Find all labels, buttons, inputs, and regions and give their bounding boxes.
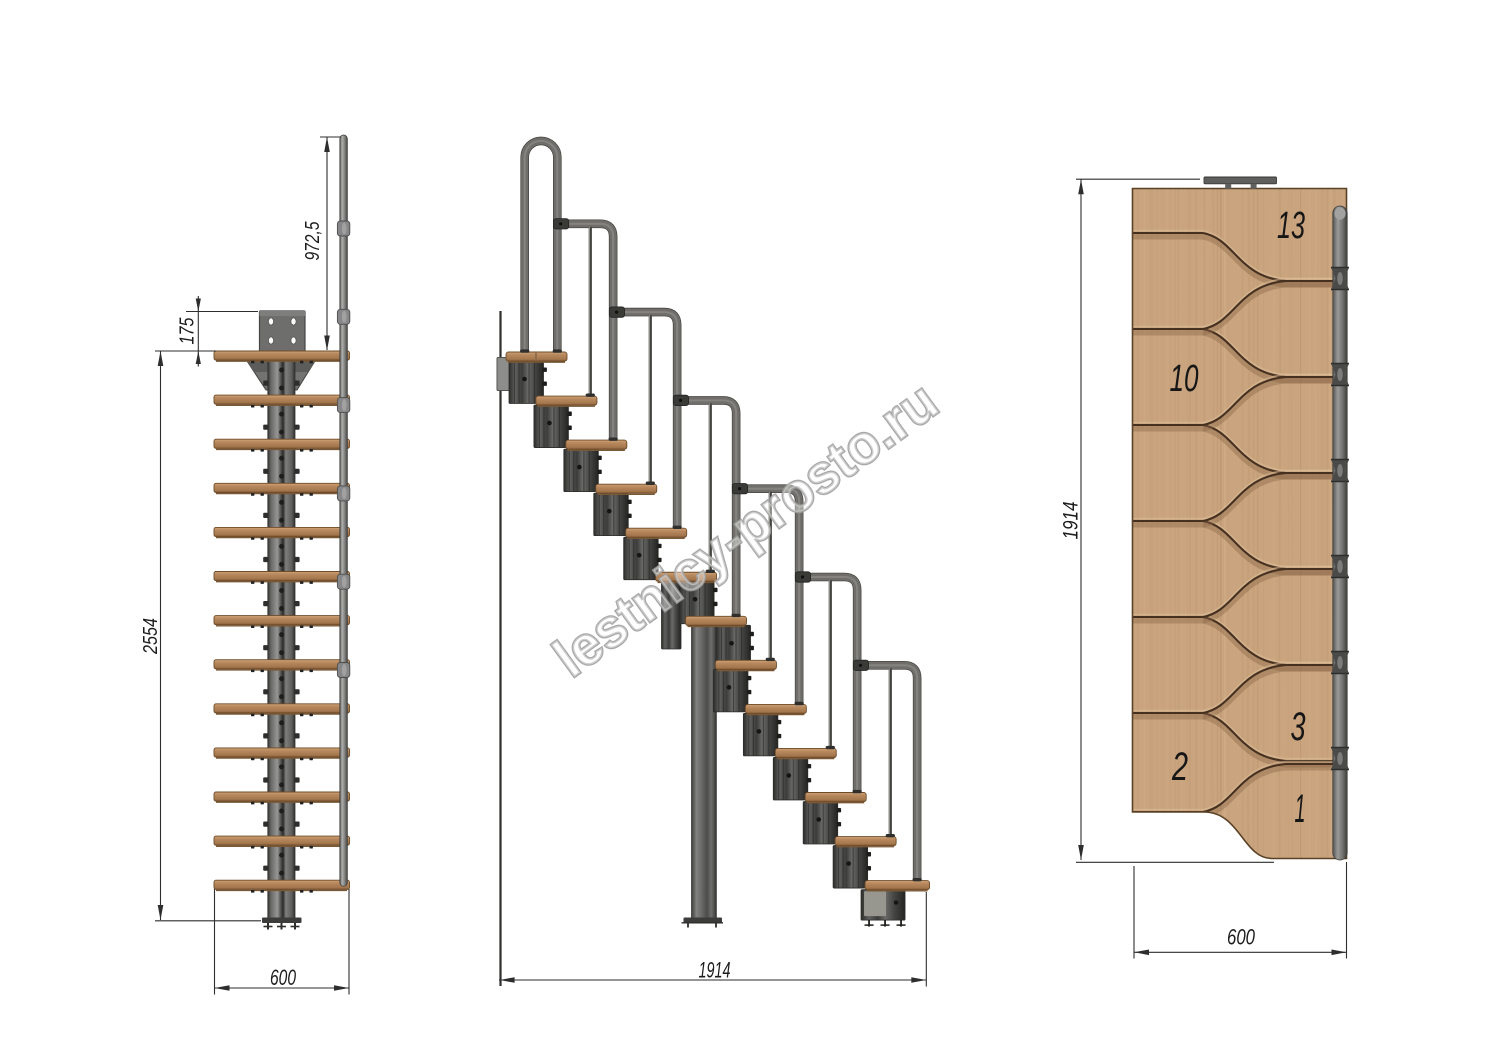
svg-text:3: 3 bbox=[1291, 705, 1306, 749]
svg-text:175: 175 bbox=[177, 317, 199, 345]
svg-text:600: 600 bbox=[1227, 925, 1256, 950]
svg-text:972,5: 972,5 bbox=[302, 221, 324, 261]
svg-text:13: 13 bbox=[1277, 205, 1305, 247]
svg-text:1: 1 bbox=[1295, 787, 1306, 831]
svg-text:10: 10 bbox=[1170, 358, 1199, 400]
svg-text:1914: 1914 bbox=[1060, 502, 1083, 540]
svg-text:2554: 2554 bbox=[140, 618, 162, 655]
svg-text:2: 2 bbox=[1171, 745, 1188, 789]
svg-text:1914: 1914 bbox=[699, 958, 731, 983]
svg-text:600: 600 bbox=[270, 965, 297, 990]
